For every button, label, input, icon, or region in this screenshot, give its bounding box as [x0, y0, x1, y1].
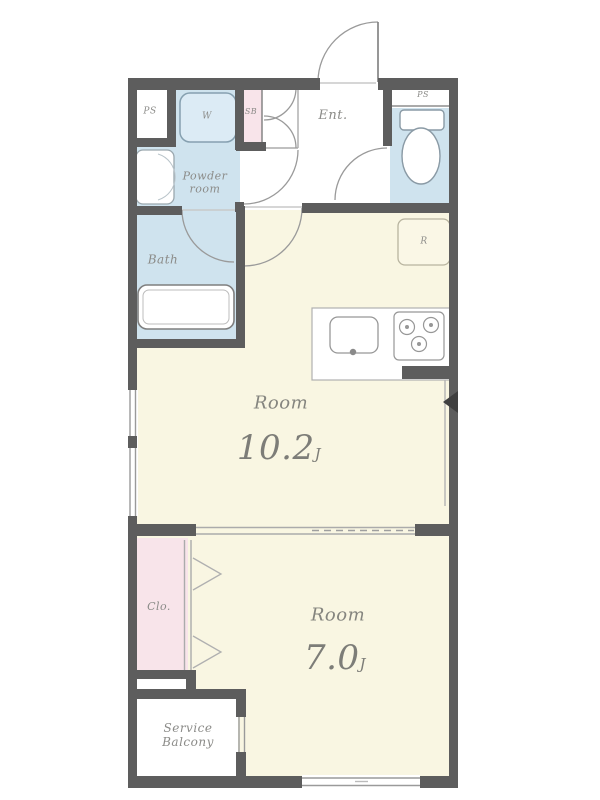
kitchen-sink-icon [330, 317, 378, 353]
bath-label: Bath [148, 254, 179, 267]
main-room-size: 10.2J [237, 431, 321, 467]
powder-room-label: Powder room [183, 170, 228, 195]
stove-burner-dot [417, 342, 421, 346]
wall-segment [383, 86, 392, 146]
main-room-size-value: 10.2 [237, 428, 315, 468]
wall-segment [167, 86, 176, 144]
entrance-label: Ent. [318, 109, 347, 123]
wall-segment [128, 206, 182, 215]
wall-segment [402, 366, 458, 379]
shoe-box-label: SB [245, 108, 257, 116]
wall-segment [236, 206, 245, 348]
washer-label: W [202, 112, 212, 121]
wall-segment [128, 689, 246, 699]
second-room-label: Room [311, 607, 365, 626]
wall-segment [128, 138, 176, 147]
wall-segment [302, 203, 458, 213]
left-window-gap [127, 390, 138, 516]
powder-sink-icon [136, 150, 174, 204]
window-mullion [128, 436, 137, 448]
toilet-tank-icon [400, 110, 444, 130]
main-room-size-unit: J [315, 445, 322, 463]
powder-room-door-arc [244, 150, 298, 204]
service-balcony-label-line2: Balcony [162, 735, 214, 749]
wall-segment [128, 524, 196, 536]
main-room-label: Room [254, 395, 308, 414]
floor-plan: PS W SB Ent. PS Powder room Bath R Room … [0, 0, 600, 800]
toilet-bowl-icon [402, 128, 440, 184]
wall-segment [415, 524, 458, 536]
wall-segment [128, 516, 137, 788]
wall-segment [128, 78, 320, 90]
kitchen-faucet-dot [350, 349, 356, 355]
wall-segment [449, 78, 458, 788]
wall-segment [128, 670, 196, 679]
wall-segment [235, 86, 244, 150]
stove-burner-dot [429, 323, 433, 327]
second-room-size-unit: J [360, 655, 367, 673]
powder-room-label-line1: Powder [183, 169, 228, 182]
second-room-size-value: 7.0 [304, 638, 360, 678]
hall-closet-door-arc [264, 88, 296, 120]
ps-left-label: PS [143, 107, 156, 116]
closet-label: Clo. [147, 601, 171, 613]
wall-segment [128, 339, 245, 348]
service-balcony-label: Service Balcony [162, 722, 214, 750]
ps-right-label: PS [417, 91, 429, 99]
service-balcony-label-line1: Service [163, 721, 212, 735]
wall-segment [236, 752, 246, 778]
wall-segment [420, 776, 458, 788]
powder-room-label-line2: room [190, 182, 221, 195]
bathtub-icon [138, 285, 234, 329]
wall-segment [236, 689, 246, 717]
stove-burner-dot [405, 325, 409, 329]
second-room-size: 7.0J [304, 641, 366, 677]
entrance-door-arc [318, 22, 378, 82]
hall-closet-door-arc [264, 116, 296, 148]
wall-segment [236, 142, 266, 151]
wall-segment [128, 776, 302, 788]
refrigerator-label: R [420, 237, 427, 246]
toilet-door-arc [335, 148, 387, 200]
